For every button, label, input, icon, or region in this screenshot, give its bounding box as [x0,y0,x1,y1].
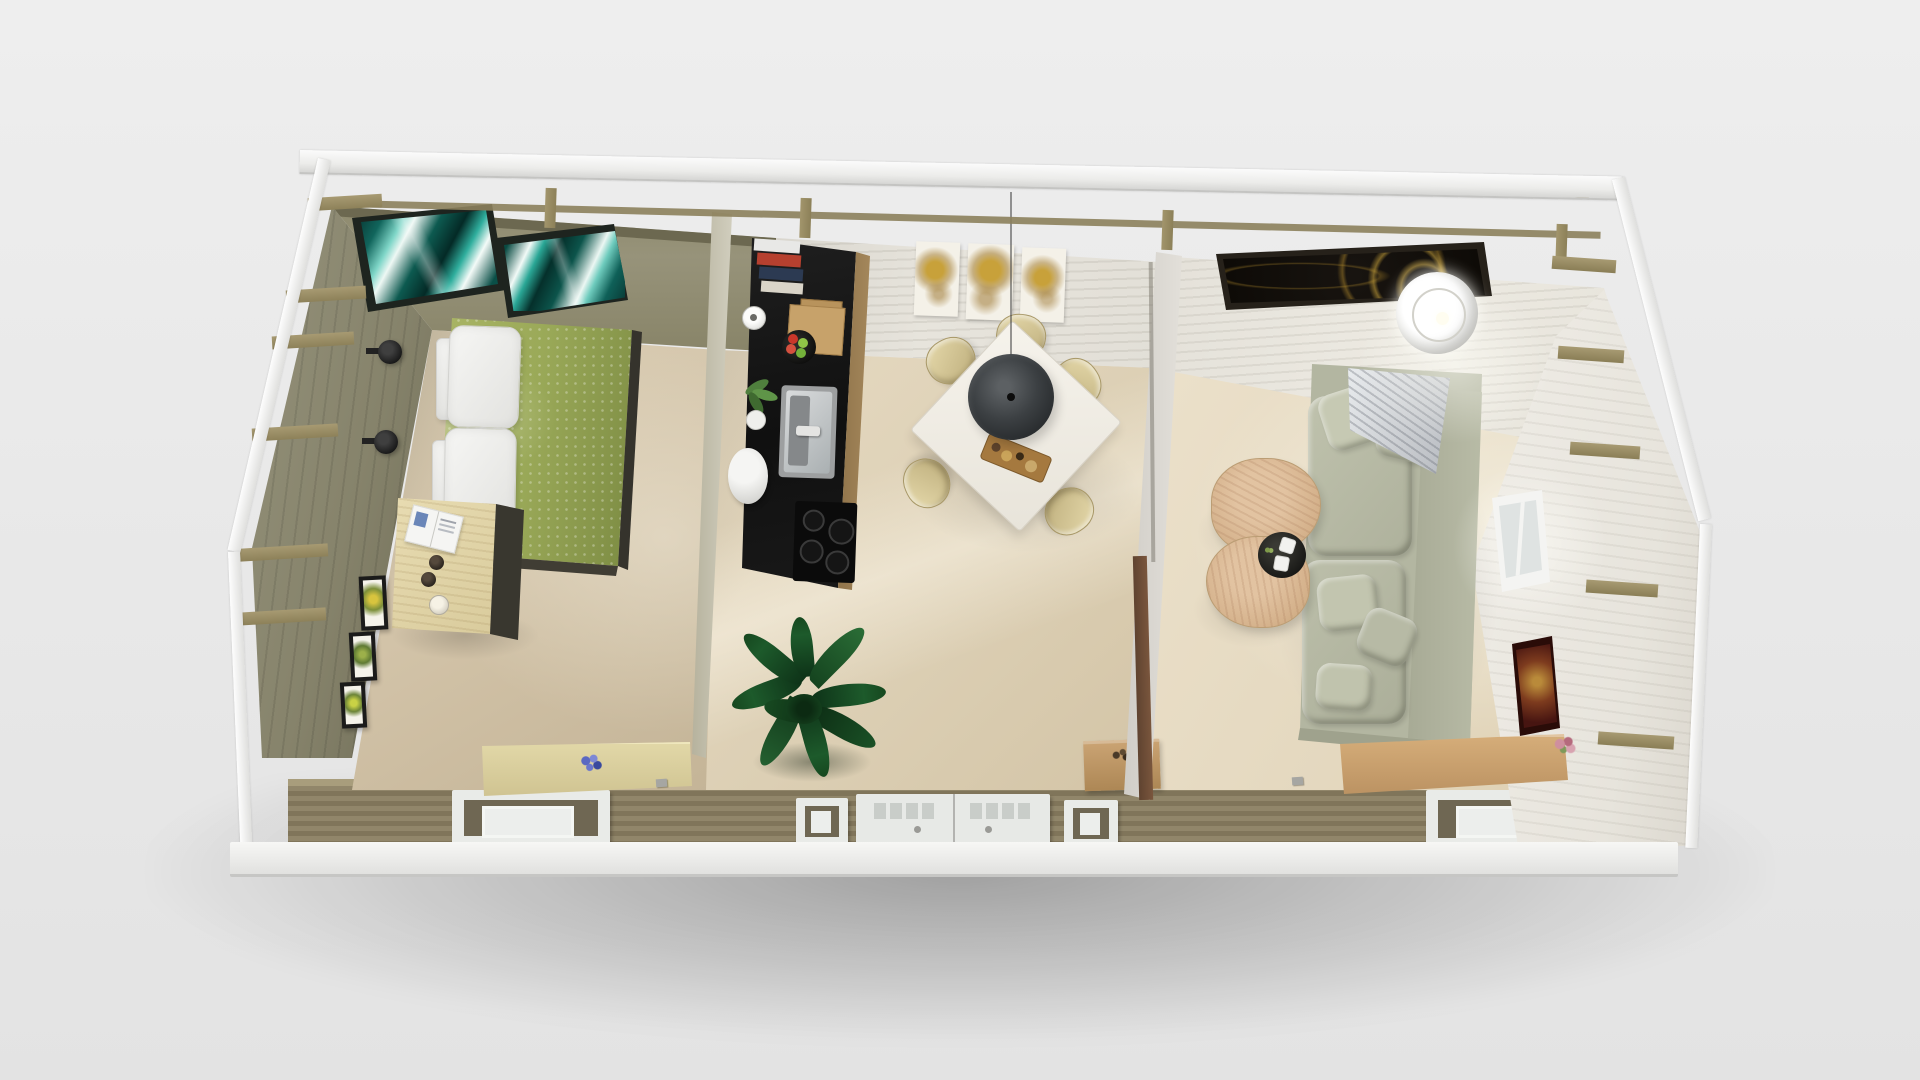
tray-sprig [1264,546,1274,555]
window-sash-vertical [1515,498,1525,586]
botanical-frame-3 [340,681,367,728]
food-item-3 [1015,451,1025,461]
magazine-lines [440,518,456,524]
cabin-top-down-render [0,0,1920,1080]
narrow-window-left-sash [811,811,831,833]
reading-lamp-top-shade [378,340,402,364]
bench-blue-flowers [578,752,604,774]
fascia-rail-top [300,150,1622,201]
magazine-crease [430,512,440,547]
triptych-panel-3 [1020,247,1067,322]
cooktop [793,501,858,583]
door-split-line [953,794,955,848]
right-rafter-1 [1552,256,1617,273]
sofa-pillow-5 [1314,662,1373,712]
food-item-1 [990,441,1002,453]
apple-green-1 [798,338,808,348]
burner-4 [825,550,850,575]
white-vase [742,306,766,330]
candle-jar [429,595,449,615]
kitchen-sink [778,385,837,479]
cup-1 [429,555,444,570]
botanical-print-1 [363,580,384,627]
burner-1 [802,509,825,532]
fruit-bowl [782,330,816,364]
narrow-window-left [796,798,848,844]
botanical-print-2 [353,636,373,678]
lamp-bulb [1436,312,1449,325]
door-handle-left [914,826,921,833]
pendant-apex [1007,393,1015,401]
narrow-window-right [1064,800,1118,846]
botanical-frame-1 [359,575,389,630]
apple-green-2 [796,348,806,358]
magazine-photo [413,511,428,527]
botanical-print-3 [344,686,363,725]
round-tray [1258,532,1306,578]
pendant-lamp [968,354,1054,440]
wall-hinge-2 [1292,777,1304,786]
burner-2 [828,518,855,545]
cup-2 [421,572,436,587]
white-canister [728,448,768,504]
triptych-panel-1 [914,241,961,316]
roof-tab-3 [1161,210,1173,250]
entrance-double-door [856,794,1050,848]
bedroom-window-sash [482,806,574,838]
wall-hinge-1 [656,779,668,788]
base-rail [230,842,1678,877]
tray-cup-2 [1273,555,1290,572]
vase-opening [750,314,757,321]
door-right-panes [970,803,1032,819]
door-left-panes [874,803,936,819]
plant-center [786,694,822,724]
bed-pillow-1 [446,325,522,429]
sink-faucet [796,426,820,437]
floor-lamp [1396,272,1478,354]
roof-tab-1 [544,188,556,228]
apple-red-2 [786,344,796,354]
food-item-4 [1023,458,1039,474]
sideboard-pink-flowers [1552,736,1578,756]
triptych-panel-2 [966,243,1015,321]
botanical-frame-2 [349,631,378,681]
reading-lamp-bottom-shade [374,430,398,454]
apple-red-1 [788,334,798,344]
bedroom-window [452,790,610,844]
tray-cup-1 [1278,536,1297,555]
herb-pot [746,410,766,430]
narrow-window-right-sash [1080,813,1100,835]
door-handle-right [985,826,992,833]
food-item-2 [999,449,1013,463]
burner-3 [799,539,824,564]
roof-tab-2 [799,198,811,238]
